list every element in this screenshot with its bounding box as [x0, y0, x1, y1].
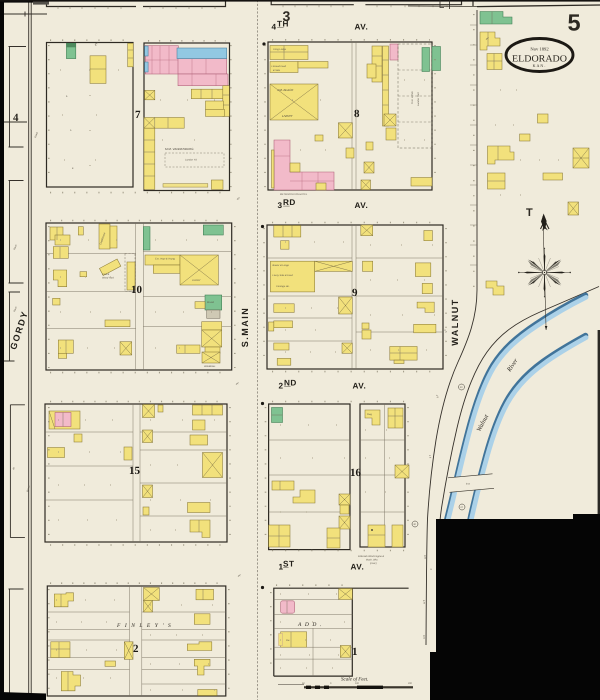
svg-text:FINLEY'S: FINLEY'S: [116, 623, 175, 629]
svg-text:WALNUT: WALNUT: [450, 298, 460, 346]
svg-text:Nov 1892: Nov 1892: [530, 47, 549, 52]
svg-text:Exc. Hoyt & Young: Exc. Hoyt & Young: [155, 258, 176, 261]
svg-text:AV.: AV.: [355, 23, 369, 32]
svg-text:AV.: AV.: [355, 201, 369, 210]
svg-text:T: T: [526, 207, 533, 219]
svg-text:200: 200: [408, 682, 413, 685]
svg-text:LIVERY: LIVERY: [192, 279, 201, 282]
svg-text:AV.: AV.: [351, 563, 365, 572]
svg-text:15: 15: [129, 465, 141, 477]
svg-text:Livery Sale & Feed: Livery Sale & Feed: [273, 274, 294, 277]
svg-text:J.M. BLACK: J.M. BLACK: [277, 88, 294, 92]
svg-text:M.Hall: M.Hall: [207, 301, 214, 304]
svg-text:Carriage Ho.: Carriage Ho.: [276, 285, 290, 288]
svg-text:M.M. VANDENBURG: M.M. VANDENBURG: [165, 147, 194, 151]
svg-text:LIVERY: LIVERY: [282, 114, 294, 118]
svg-text:8: 8: [354, 108, 360, 120]
svg-text:ADD.: ADD.: [297, 622, 325, 628]
svg-text:AV.: AV.: [353, 382, 367, 391]
svg-text:4: 4: [13, 112, 19, 124]
svg-text:4: 4: [272, 23, 277, 32]
svg-text:10: 10: [131, 284, 143, 296]
svg-text:RD: RD: [283, 198, 296, 207]
svg-text:Iron: Iron: [466, 483, 471, 486]
svg-text:100: 100: [355, 682, 360, 685]
svg-text:E R: E R: [422, 600, 425, 605]
svg-text:5: 5: [568, 10, 581, 36]
svg-text:7: 7: [135, 109, 141, 121]
svg-text:1: 1: [352, 646, 358, 658]
svg-text:R B: R B: [423, 555, 426, 560]
svg-text:R D: R D: [422, 635, 425, 640]
svg-text:3: 3: [283, 8, 291, 24]
svg-text:Dwg: Dwg: [367, 413, 372, 416]
svg-text:3: 3: [278, 201, 283, 210]
svg-text:Wood Yard: Wood Yard: [102, 277, 114, 280]
svg-text:Baxter & Lange: Baxter & Lange: [273, 264, 290, 267]
svg-text:Dw: Dw: [286, 639, 290, 642]
svg-text:9: 9: [352, 287, 358, 299]
svg-text:ST: ST: [283, 560, 294, 569]
svg-text:Weld&Gas: Weld&Gas: [204, 365, 216, 368]
svg-text:Lumber Yard: Lumber Yard: [417, 92, 420, 106]
svg-text:16: 16: [350, 467, 362, 479]
svg-text:ND: ND: [284, 379, 297, 388]
svg-text:Lumber Yd: Lumber Yd: [185, 159, 197, 162]
svg-text:KAN.: KAN.: [533, 63, 547, 68]
svg-text:(conc): (conc): [370, 562, 377, 565]
svg-text:2: 2: [279, 382, 284, 391]
svg-text:& Sale: & Sale: [273, 69, 281, 72]
svg-text:Linseed Feed: Linseed Feed: [272, 65, 287, 68]
svg-text:Cong Lodge: Cong Lodge: [273, 48, 287, 51]
svg-text:½: ½: [430, 568, 432, 571]
svg-text:S.MAIN: S.MAIN: [240, 307, 250, 348]
svg-text:R.W. LONG: R.W. LONG: [411, 91, 414, 104]
svg-text:2: 2: [133, 643, 139, 655]
svg-text:METROPOLITAN HOTEL: METROPOLITAN HOTEL: [280, 193, 308, 196]
